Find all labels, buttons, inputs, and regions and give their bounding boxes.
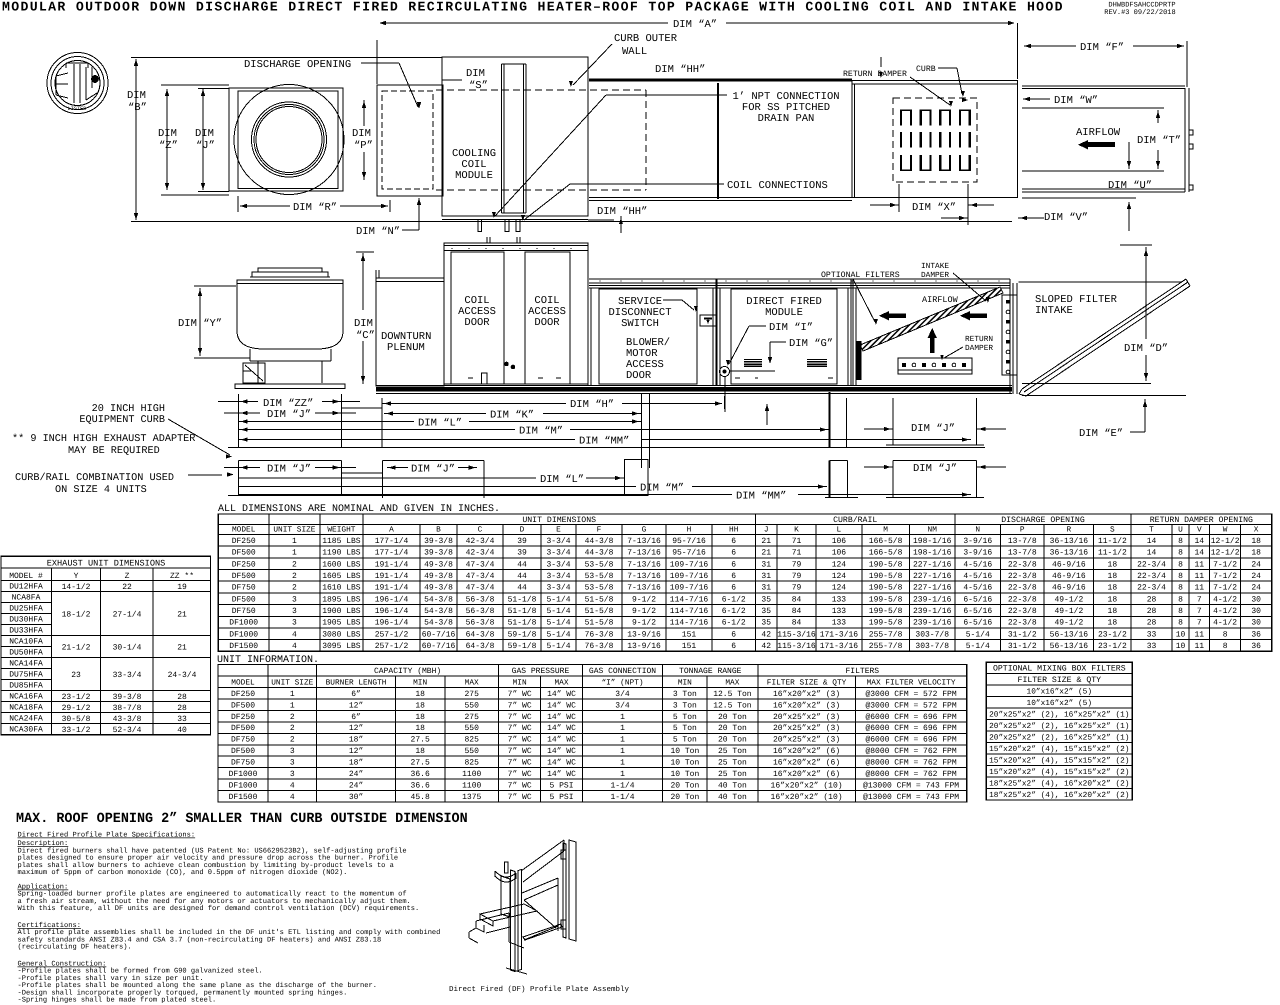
svg-text:20 Ton: 20 Ton (718, 713, 747, 722)
svg-text:196-1/4: 196-1/4 (375, 595, 409, 604)
svg-text:“I” (NPT): “I” (NPT) (601, 679, 643, 688)
svg-text:10”x16”x2” (5): 10”x16”x2” (5) (1027, 688, 1093, 697)
svg-text:49-1/2: 49-1/2 (1054, 607, 1083, 616)
svg-text:18: 18 (415, 747, 425, 756)
svg-text:44: 44 (517, 572, 527, 581)
svg-text:35: 35 (761, 607, 771, 616)
svg-text:1905 LBS: 1905 LBS (322, 619, 361, 628)
svg-text:28: 28 (1147, 619, 1157, 628)
svg-text:DIM “L”: DIM “L” (418, 418, 462, 430)
svg-text:1100: 1100 (462, 770, 481, 779)
svg-text:21: 21 (177, 643, 187, 652)
svg-text:190-5/8: 190-5/8 (869, 584, 903, 593)
svg-text:2: 2 (290, 713, 295, 722)
svg-text:WEIGHT: WEIGHT (327, 526, 355, 535)
svg-text:56-3/8: 56-3/8 (466, 619, 495, 628)
svg-text:18: 18 (415, 724, 425, 733)
svg-text:1: 1 (290, 690, 295, 699)
svg-text:@8000 CFM = 762 FPM: @8000 CFM = 762 FPM (865, 759, 956, 768)
svg-text:RETURN DAMPER OPENING: RETURN DAMPER OPENING (1150, 516, 1253, 525)
svg-text:18: 18 (1251, 549, 1261, 558)
svg-text:191-1/4: 191-1/4 (375, 584, 409, 593)
svg-text:25 Ton: 25 Ton (718, 759, 747, 768)
svg-text:30-1/4: 30-1/4 (113, 643, 142, 652)
svg-text:14-1/2: 14-1/2 (62, 583, 91, 592)
svg-text:47-3/4: 47-3/4 (466, 572, 495, 581)
svg-text:DOOR: DOOR (626, 370, 652, 382)
svg-text:4: 4 (290, 793, 295, 802)
svg-text:HH: HH (729, 526, 739, 535)
svg-text:5-1/4: 5-1/4 (966, 642, 990, 651)
svg-text:133: 133 (832, 595, 847, 604)
svg-text:DF1500: DF1500 (229, 642, 258, 651)
svg-text:DIM “W”: DIM “W” (1054, 95, 1098, 107)
svg-text:33-3/4: 33-3/4 (113, 671, 142, 680)
svg-text:9-1/2: 9-1/2 (632, 595, 656, 604)
svg-text:NM: NM (928, 526, 938, 535)
svg-text:7: 7 (1197, 595, 1202, 604)
svg-text:14” WC: 14” WC (547, 701, 576, 710)
svg-text:DIM “F”: DIM “F” (1080, 42, 1124, 54)
svg-text:DU12HFA: DU12HFA (9, 583, 43, 592)
svg-text:47-3/4: 47-3/4 (466, 584, 495, 593)
svg-text:8: 8 (1178, 595, 1183, 604)
svg-text:114-7/16: 114-7/16 (670, 607, 709, 616)
svg-text:2: 2 (290, 736, 295, 745)
svg-text:18: 18 (1108, 595, 1118, 604)
svg-text:115-3/16: 115-3/16 (777, 642, 816, 651)
svg-text:F: F (597, 526, 602, 535)
svg-text:1190 LBS: 1190 LBS (322, 549, 361, 558)
svg-text:14: 14 (1147, 537, 1157, 546)
svg-text:76-3/8: 76-3/8 (585, 642, 614, 651)
svg-text:5 PSI: 5 PSI (549, 781, 573, 790)
svg-text:E: E (556, 526, 561, 535)
svg-text:@6000 CFM = 696 FPM: @6000 CFM = 696 FPM (865, 713, 956, 722)
svg-text:1100: 1100 (462, 781, 481, 790)
svg-text:1: 1 (620, 747, 625, 756)
svg-text:6: 6 (731, 642, 736, 651)
svg-text:1: 1 (620, 724, 625, 733)
svg-text:11-1/2: 11-1/2 (1098, 537, 1127, 546)
svg-text:8: 8 (1178, 549, 1183, 558)
svg-text:13-9/16: 13-9/16 (627, 642, 661, 651)
svg-text:UNIT SIZE: UNIT SIZE (273, 526, 315, 535)
svg-text:DRAIN PAN: DRAIN PAN (758, 113, 815, 125)
svg-text:18: 18 (415, 690, 425, 699)
svg-text:3-3/4: 3-3/4 (546, 572, 570, 581)
svg-text:3095 LBS: 3095 LBS (322, 642, 361, 651)
svg-text:133: 133 (832, 607, 847, 616)
svg-text:CURB: CURB (916, 65, 936, 74)
svg-text:DF500: DF500 (232, 572, 256, 581)
svg-text:33: 33 (1147, 642, 1157, 651)
svg-text:171-3/16: 171-3/16 (820, 642, 859, 651)
svg-text:51-5/8: 51-5/8 (585, 607, 614, 616)
svg-text:1: 1 (292, 537, 297, 546)
svg-text:5-1/4: 5-1/4 (546, 630, 570, 639)
svg-text:18”x25”x2” (4), 16”x20”x2” (2): 18”x25”x2” (4), 16”x20”x2” (2) (989, 779, 1129, 788)
svg-text:1600 LBS: 1600 LBS (322, 560, 361, 569)
svg-text:20 Ton: 20 Ton (718, 724, 747, 733)
svg-text:22-3/8: 22-3/8 (1008, 560, 1037, 569)
svg-text:5 Ton: 5 Ton (673, 724, 697, 733)
svg-text:DF750: DF750 (231, 759, 255, 768)
svg-text:35: 35 (761, 619, 771, 628)
svg-text:6-5/16: 6-5/16 (963, 595, 992, 604)
svg-text:DIM “D”: DIM “D” (1124, 343, 1168, 355)
svg-text:59-1/8: 59-1/8 (508, 642, 537, 651)
svg-text:30: 30 (1251, 607, 1261, 616)
svg-text:@3000 CFM = 572 FPM: @3000 CFM = 572 FPM (865, 701, 956, 710)
svg-text:7-13/16: 7-13/16 (627, 549, 661, 558)
svg-text:DF1000: DF1000 (229, 619, 258, 628)
svg-text:J: J (764, 526, 769, 535)
svg-text:5-1/4: 5-1/4 (546, 595, 570, 604)
svg-text:EXHAUST UNIT DIMENSIONS: EXHAUST UNIT DIMENSIONS (47, 559, 166, 569)
svg-text:DF250: DF250 (231, 713, 255, 722)
svg-text:MAX FILTER VELOCITY: MAX FILTER VELOCITY (867, 679, 956, 688)
svg-text:MAX: MAX (465, 679, 479, 688)
svg-text:257-1/2: 257-1/2 (375, 630, 409, 639)
svg-text:303-7/8: 303-7/8 (915, 642, 949, 651)
svg-text:76-3/8: 76-3/8 (585, 630, 614, 639)
svg-text:14” WC: 14” WC (547, 747, 576, 756)
svg-text:6-1/2: 6-1/2 (722, 607, 746, 616)
svg-text:DIM “MM”: DIM “MM” (579, 436, 629, 448)
svg-text:A: A (389, 526, 394, 535)
svg-text:1185 LBS: 1185 LBS (322, 537, 361, 546)
svg-text:825: 825 (464, 759, 479, 768)
svg-text:RETURN DAMPER: RETURN DAMPER (843, 70, 907, 79)
svg-text:14” WC: 14” WC (547, 713, 576, 722)
svg-text:7: 7 (1197, 607, 1202, 616)
svg-text:3-3/4: 3-3/4 (546, 584, 570, 593)
svg-text:DIM “G”: DIM “G” (789, 338, 833, 350)
svg-text:9-1/2: 9-1/2 (632, 607, 656, 616)
svg-text:49-3/8: 49-3/8 (424, 572, 453, 581)
svg-text:3: 3 (292, 607, 297, 616)
svg-text:6”: 6” (351, 690, 361, 699)
svg-text:36.6: 36.6 (411, 781, 430, 790)
svg-text:6: 6 (731, 584, 736, 593)
svg-text:24: 24 (1251, 584, 1261, 593)
svg-text:DF500: DF500 (231, 747, 255, 756)
svg-text:MIN: MIN (513, 679, 527, 688)
svg-text:DIM: DIM (127, 90, 146, 102)
svg-text:190-5/8: 190-5/8 (869, 560, 903, 569)
svg-text:DIM “J”: DIM “J” (913, 463, 957, 475)
svg-text:227-1/16: 227-1/16 (913, 560, 952, 569)
svg-text:31: 31 (761, 584, 771, 593)
svg-text:1: 1 (290, 701, 295, 710)
svg-text:124: 124 (832, 560, 847, 569)
svg-text:54-3/8: 54-3/8 (424, 595, 453, 604)
svg-text:133: 133 (832, 619, 847, 628)
svg-text:Direct Fired Profile Plate Spe: Direct Fired Profile Plate Specification… (18, 831, 196, 840)
svg-text:109-7/16: 109-7/16 (670, 572, 709, 581)
svg-text:DIM “A”: DIM “A” (673, 19, 717, 31)
svg-text:Y: Y (74, 572, 79, 581)
svg-text:MAX: MAX (554, 679, 568, 688)
svg-text:DU75HFA: DU75HFA (9, 671, 43, 680)
svg-text:DIM: DIM (352, 128, 371, 140)
svg-text:16”x20”x2” (6): 16”x20”x2” (6) (773, 747, 840, 756)
svg-text:H: H (687, 526, 692, 535)
svg-text:1605 LBS: 1605 LBS (322, 572, 361, 581)
svg-text:56-3/8: 56-3/8 (466, 607, 495, 616)
svg-text:7-1/2: 7-1/2 (1213, 560, 1237, 569)
svg-text:24”: 24” (349, 770, 364, 779)
svg-text:8: 8 (1178, 619, 1183, 628)
svg-text:46-9/16: 46-9/16 (1052, 572, 1086, 581)
svg-text:L: L (837, 526, 842, 535)
svg-text:DF500: DF500 (232, 549, 256, 558)
svg-text:12.5 Ton: 12.5 Ton (713, 690, 752, 699)
svg-text:“P”: “P” (354, 140, 373, 152)
svg-text:56-13/16: 56-13/16 (1050, 642, 1089, 651)
svg-text:36-13/16: 36-13/16 (1050, 537, 1089, 546)
svg-text:12-1/2: 12-1/2 (1211, 549, 1240, 558)
svg-text:59-1/8: 59-1/8 (508, 630, 537, 639)
svg-text:7” WC: 7” WC (508, 736, 532, 745)
svg-text:6: 6 (731, 549, 736, 558)
svg-text:53-5/8: 53-5/8 (585, 584, 614, 593)
svg-text:8: 8 (1178, 560, 1183, 569)
svg-text:REV.#3 09/22/2018: REV.#3 09/22/2018 (1104, 8, 1175, 17)
svg-text:275: 275 (464, 690, 479, 699)
svg-text:GAS CONNECTION: GAS CONNECTION (589, 667, 656, 676)
svg-text:S: S (1110, 526, 1115, 535)
svg-text:11: 11 (1194, 572, 1204, 581)
svg-text:W: W (1223, 526, 1228, 535)
svg-text:15”x20”x2” (4), 15”x15”x2” (2): 15”x20”x2” (4), 15”x15”x2” (2) (989, 756, 1129, 765)
svg-text:3-3/4: 3-3/4 (546, 560, 570, 569)
svg-text:7-1/2: 7-1/2 (1213, 584, 1237, 593)
svg-text:3-3/4: 3-3/4 (546, 537, 570, 546)
svg-text:PLENUM: PLENUM (387, 342, 425, 354)
svg-text:7” WC: 7” WC (508, 713, 532, 722)
svg-text:3080 LBS: 3080 LBS (322, 630, 361, 639)
svg-text:255-7/8: 255-7/8 (869, 630, 903, 639)
svg-text:18: 18 (1108, 584, 1118, 593)
svg-text:DIM “HH”: DIM “HH” (655, 64, 705, 76)
svg-text:46-9/16: 46-9/16 (1052, 584, 1086, 593)
svg-text:7-13/16: 7-13/16 (627, 572, 661, 581)
svg-text:9-1/2: 9-1/2 (632, 619, 656, 628)
svg-text:22-3/4: 22-3/4 (1137, 572, 1166, 581)
svg-text:6: 6 (731, 572, 736, 581)
svg-text:79: 79 (792, 560, 802, 569)
svg-text:D: D (520, 526, 525, 535)
svg-text:MODULE: MODULE (455, 170, 493, 182)
svg-text:38-7/8: 38-7/8 (113, 704, 142, 713)
svg-text:5 PSI: 5 PSI (549, 793, 573, 802)
svg-text:51-1/8: 51-1/8 (508, 595, 537, 604)
svg-text:6”: 6” (351, 713, 361, 722)
svg-text:51-5/8: 51-5/8 (585, 619, 614, 628)
svg-text:B: B (436, 526, 441, 535)
svg-text:71: 71 (792, 549, 802, 558)
svg-text:7” WC: 7” WC (508, 724, 532, 733)
svg-text:22-3/8: 22-3/8 (1008, 619, 1037, 628)
svg-text:31-1/2: 31-1/2 (1008, 630, 1037, 639)
svg-text:49-3/8: 49-3/8 (424, 560, 453, 569)
svg-text:79: 79 (792, 572, 802, 581)
svg-text:24: 24 (1251, 572, 1261, 581)
svg-text:DF1000: DF1000 (229, 630, 258, 639)
svg-text:11: 11 (1194, 630, 1204, 639)
svg-text:16”x20”x2” (10): 16”x20”x2” (10) (771, 781, 843, 790)
svg-text:14: 14 (1194, 537, 1204, 546)
svg-text:1: 1 (620, 736, 625, 745)
svg-text:DF250: DF250 (232, 537, 256, 546)
svg-text:44: 44 (517, 560, 527, 569)
svg-text:1: 1 (620, 759, 625, 768)
svg-text:ON SIZE 4 UNITS: ON SIZE 4 UNITS (55, 485, 147, 496)
svg-text:19: 19 (177, 583, 187, 592)
svg-text:7-13/16: 7-13/16 (627, 560, 661, 569)
svg-text:20”x25”x2” (2), 16”x25”x2” (1): 20”x25”x2” (2), 16”x25”x2” (1) (989, 733, 1129, 742)
svg-text:21: 21 (761, 537, 771, 546)
svg-text:FILTER SIZE & QTY: FILTER SIZE & QTY (1018, 676, 1102, 685)
svg-text:6: 6 (731, 560, 736, 569)
svg-text:12-1/2: 12-1/2 (1211, 537, 1240, 546)
svg-text:With this feature, all DF unit: With this feature, all DF units are desi… (18, 904, 420, 913)
svg-text:30: 30 (1251, 595, 1261, 604)
svg-text:MODEL: MODEL (232, 526, 256, 535)
svg-text:7-13/16: 7-13/16 (627, 537, 661, 546)
svg-text:MODEL #: MODEL # (9, 572, 43, 581)
svg-text:20”x25”x2” (3): 20”x25”x2” (3) (773, 724, 840, 733)
svg-text:MIN: MIN (678, 679, 692, 688)
svg-text:550: 550 (464, 724, 479, 733)
svg-text:1895 LBS: 1895 LBS (322, 595, 361, 604)
svg-text:23: 23 (71, 671, 81, 680)
svg-text:43-3/8: 43-3/8 (113, 715, 142, 724)
svg-text:3: 3 (292, 619, 297, 628)
svg-text:12”: 12” (349, 701, 364, 710)
svg-text:171-3/16: 171-3/16 (820, 630, 859, 639)
svg-text:“Z”: “Z” (159, 140, 178, 152)
svg-text:DF1000: DF1000 (229, 770, 258, 779)
svg-text:DIM “J”: DIM “J” (267, 409, 311, 421)
svg-text:DF1000: DF1000 (229, 781, 258, 790)
svg-text:DIM “L”: DIM “L” (540, 474, 584, 486)
svg-text:124: 124 (832, 572, 847, 581)
svg-text:16”x20”x2” (3): 16”x20”x2” (3) (773, 690, 840, 699)
svg-text:DF250: DF250 (232, 560, 256, 569)
svg-text:10 Ton: 10 Ton (670, 747, 699, 756)
svg-text:10: 10 (1176, 630, 1186, 639)
svg-text:1: 1 (292, 549, 297, 558)
svg-text:OPTIONAL FILTERS: OPTIONAL FILTERS (821, 271, 900, 280)
svg-text:10 Ton: 10 Ton (670, 770, 699, 779)
svg-text:DIM “V”: DIM “V” (1044, 212, 1088, 224)
svg-text:42-3/4: 42-3/4 (466, 537, 495, 546)
svg-text:16”x20”x2” (3): 16”x20”x2” (3) (773, 701, 840, 710)
svg-text:36-13/16: 36-13/16 (1050, 549, 1089, 558)
svg-text:X: X (1254, 526, 1259, 535)
svg-text:DISCHARGE OPENING: DISCHARGE OPENING (1001, 516, 1085, 525)
svg-text:U: U (1178, 526, 1183, 535)
svg-text:@8000 CFM = 762 FPM: @8000 CFM = 762 FPM (865, 747, 956, 756)
svg-text:20”x25”x2” (3): 20”x25”x2” (3) (773, 736, 840, 745)
svg-text:44: 44 (517, 584, 527, 593)
svg-text:45.8: 45.8 (411, 793, 430, 802)
svg-text:DF500: DF500 (231, 724, 255, 733)
svg-text:COIL CONNECTIONS: COIL CONNECTIONS (727, 180, 828, 192)
svg-text:20 Ton: 20 Ton (670, 781, 699, 790)
svg-text:7” WC: 7” WC (508, 690, 532, 699)
svg-text:CAPACITY (MBH): CAPACITY (MBH) (374, 667, 441, 676)
svg-text:95-7/16: 95-7/16 (672, 537, 706, 546)
svg-text:FILTERS: FILTERS (845, 667, 879, 676)
svg-text:51-5/8: 51-5/8 (585, 595, 614, 604)
svg-text:DU30HFA: DU30HFA (9, 616, 43, 625)
svg-text:AIRFLOW: AIRFLOW (922, 295, 959, 305)
svg-text:550: 550 (464, 701, 479, 710)
svg-text:DIM “R”: DIM “R” (293, 202, 337, 214)
svg-text:22: 22 (122, 583, 132, 592)
svg-text:24-3/4: 24-3/4 (168, 671, 197, 680)
svg-text:@13000 CFM = 743 FPM: @13000 CFM = 743 FPM (863, 793, 959, 802)
svg-text:@8000 CFM = 762 FPM: @8000 CFM = 762 FPM (865, 770, 956, 779)
svg-text:33-1/2: 33-1/2 (62, 726, 91, 735)
svg-text:196-1/4: 196-1/4 (375, 619, 409, 628)
svg-text:166-5/8: 166-5/8 (869, 537, 903, 546)
svg-text:6-5/16: 6-5/16 (963, 619, 992, 628)
svg-text:275: 275 (464, 713, 479, 722)
svg-text:DIM “I”: DIM “I” (769, 322, 813, 334)
svg-text:255-7/8: 255-7/8 (869, 642, 903, 651)
svg-text:2: 2 (290, 724, 295, 733)
svg-text:3 Ton: 3 Ton (673, 701, 697, 710)
svg-text:5-1/4: 5-1/4 (546, 619, 570, 628)
svg-text:DAMPER: DAMPER (965, 344, 993, 353)
svg-text:3: 3 (290, 770, 295, 779)
svg-text:7-1/2: 7-1/2 (1213, 572, 1237, 581)
svg-text:MIN: MIN (413, 679, 427, 688)
svg-text:DU85HFA: DU85HFA (9, 682, 43, 691)
svg-text:24”: 24” (349, 781, 364, 790)
svg-text:“B”: “B” (128, 102, 147, 114)
svg-text:18”: 18” (349, 759, 364, 768)
svg-text:DF750: DF750 (232, 607, 256, 616)
svg-text:DIM “HH”: DIM “HH” (597, 206, 647, 218)
svg-text:DOOR: DOOR (464, 317, 490, 329)
svg-text:4-1/2: 4-1/2 (1213, 595, 1237, 604)
svg-text:DF750: DF750 (231, 736, 255, 745)
svg-text:20”x25”x2” (3): 20”x25”x2” (3) (773, 713, 840, 722)
svg-text:DIM: DIM (466, 68, 485, 80)
svg-text:166-5/8: 166-5/8 (869, 549, 903, 558)
svg-text:14” WC: 14” WC (547, 736, 576, 745)
svg-text:30”: 30” (349, 793, 364, 802)
svg-text:95-7/16: 95-7/16 (672, 549, 706, 558)
svg-text:39: 39 (517, 549, 527, 558)
svg-text:5 Ton: 5 Ton (673, 713, 697, 722)
svg-text:46-9/16: 46-9/16 (1052, 560, 1086, 569)
svg-text:BURNER LENGTH: BURNER LENGTH (326, 679, 387, 688)
svg-text:7-13/16: 7-13/16 (627, 584, 661, 593)
svg-text:R: R (1067, 526, 1072, 535)
svg-text:36.6: 36.6 (411, 770, 430, 779)
svg-text:23-1/2: 23-1/2 (1098, 630, 1127, 639)
svg-text:64-3/8: 64-3/8 (466, 642, 495, 651)
svg-text:23-1/2: 23-1/2 (1098, 642, 1127, 651)
svg-text:18: 18 (1108, 619, 1118, 628)
